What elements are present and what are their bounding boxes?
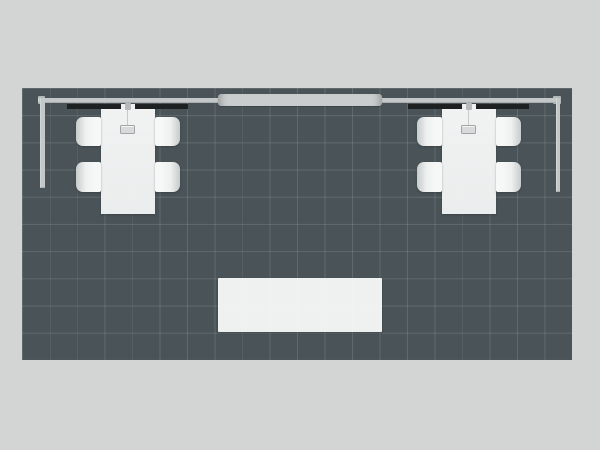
pendant-lamp xyxy=(120,125,135,134)
pendant-lamp xyxy=(461,125,476,134)
booth-rendering xyxy=(0,0,600,450)
center-counter xyxy=(218,278,382,332)
conference-set-right xyxy=(408,104,529,216)
chair xyxy=(417,162,442,192)
booth-floor xyxy=(22,88,572,360)
right-side-rail xyxy=(556,98,561,192)
chair xyxy=(76,162,101,192)
center-header-beam xyxy=(218,94,382,106)
chair xyxy=(417,117,442,147)
left-side-rail xyxy=(40,98,45,188)
chair xyxy=(155,162,180,192)
chair xyxy=(76,117,101,147)
conference-set-left xyxy=(67,104,188,216)
pendant-lamp-cord xyxy=(127,107,129,126)
chair xyxy=(496,162,521,192)
pendant-lamp-mount xyxy=(125,103,131,110)
pendant-lamp-cord xyxy=(468,107,470,126)
chair xyxy=(155,117,180,147)
chair xyxy=(496,117,521,147)
pendant-lamp-mount xyxy=(466,103,472,110)
